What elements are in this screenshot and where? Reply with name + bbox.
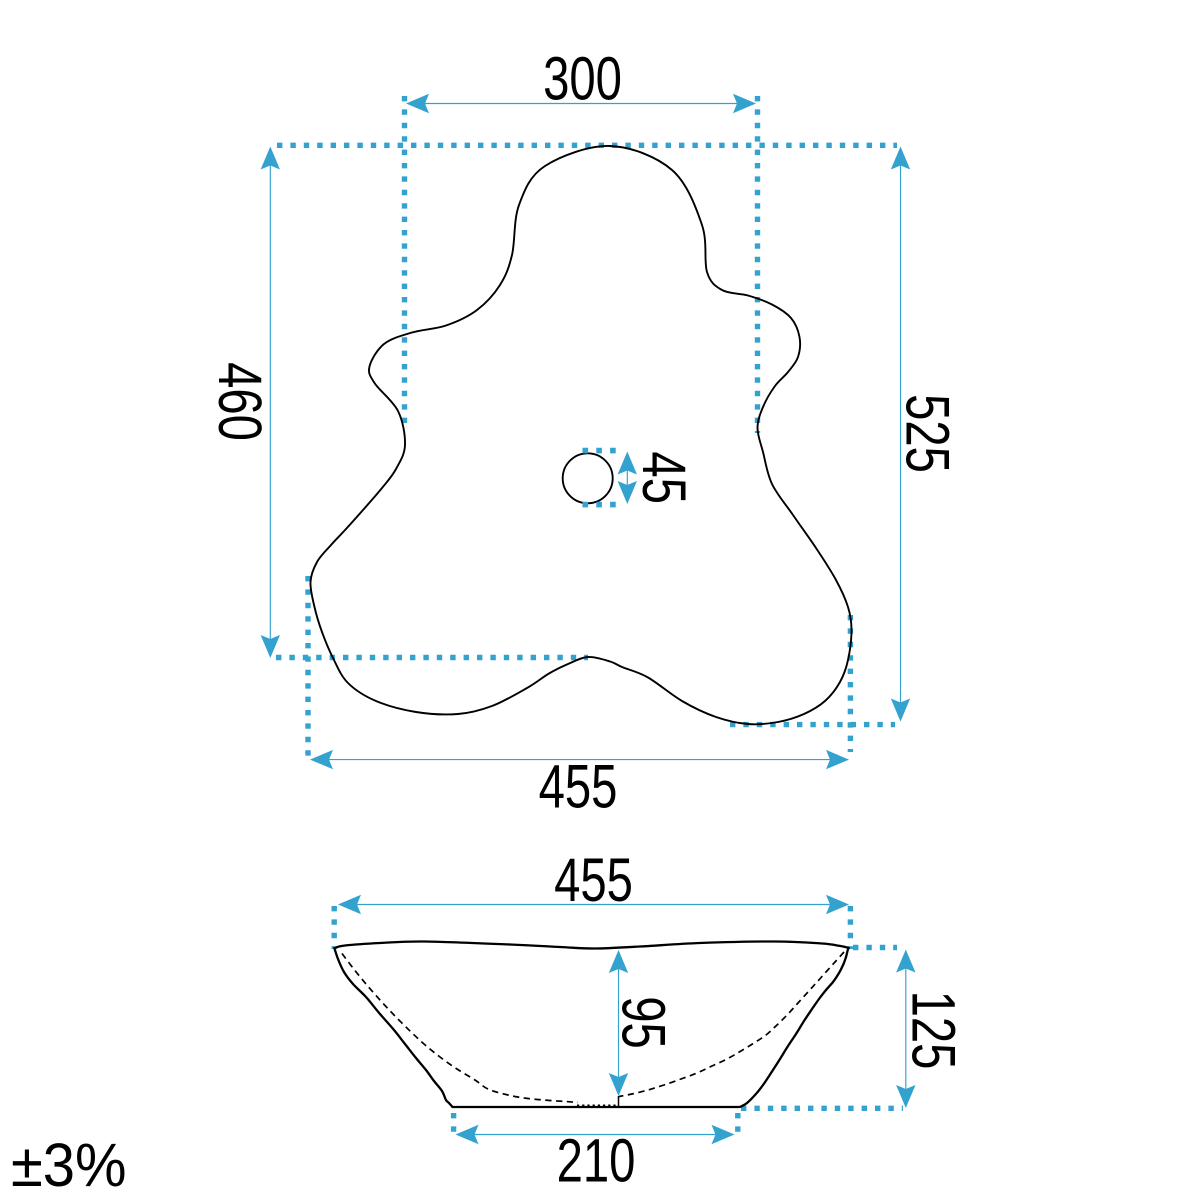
svg-text:300: 300 xyxy=(543,45,622,113)
svg-text:455: 455 xyxy=(554,846,633,914)
svg-text:460: 460 xyxy=(206,362,274,441)
svg-text:525: 525 xyxy=(893,394,961,473)
svg-text:±3%: ±3% xyxy=(11,1131,127,1200)
svg-text:210: 210 xyxy=(557,1127,636,1195)
svg-text:125: 125 xyxy=(899,991,967,1070)
svg-text:455: 455 xyxy=(539,753,618,821)
svg-text:95: 95 xyxy=(609,996,677,1049)
svg-text:45: 45 xyxy=(630,451,698,504)
